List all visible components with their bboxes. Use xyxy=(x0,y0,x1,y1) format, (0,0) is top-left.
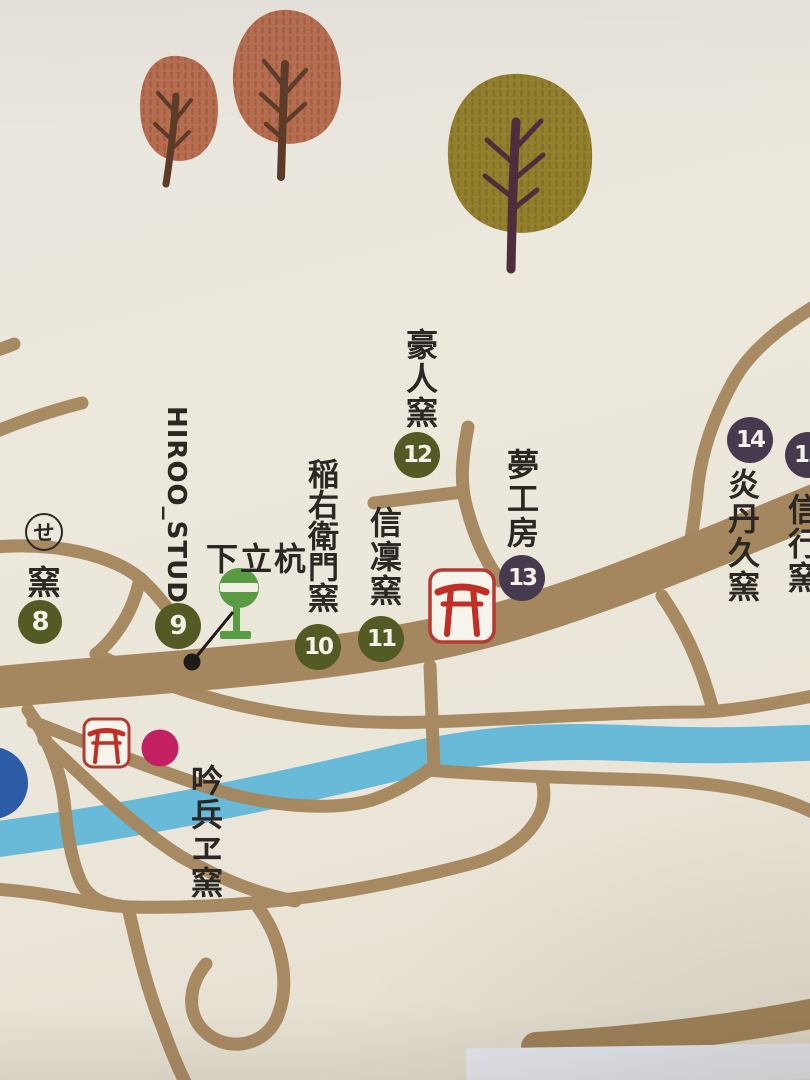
road-bottom-right-thick xyxy=(536,1008,810,1047)
road-center-branch xyxy=(374,492,463,503)
road-river-crossing xyxy=(430,666,434,770)
torii-icon xyxy=(84,719,129,767)
road-lens-branch xyxy=(96,578,140,654)
road-main-river-link xyxy=(662,596,712,706)
pale-cover-box xyxy=(466,1044,810,1080)
kiln-label-inaemon: 稲右衛門窯 xyxy=(304,458,335,613)
tree-small-terracotta xyxy=(140,56,218,184)
road-left-stub xyxy=(0,344,14,352)
marker-badge-13: 13 xyxy=(499,555,545,601)
kiln-location-dot xyxy=(142,730,179,767)
marker-badge-14: 14 xyxy=(727,417,773,463)
kiln-label-ginbee: 吟兵ヱ窯 xyxy=(189,764,221,900)
marker-badge-12: 12 xyxy=(394,432,440,478)
road-topleft-arc xyxy=(0,403,82,434)
marker-badge-10: 10 xyxy=(295,624,341,670)
kiln-label-gojin: 豪人窯 xyxy=(404,328,436,430)
kiln-label-se: せ 窯 xyxy=(24,513,64,604)
kiln-label-shinrin: 信凜窯 xyxy=(368,506,400,608)
tree-olive xyxy=(448,74,592,269)
kiln-label-entankyu: 炎丹久窯 xyxy=(726,468,758,604)
torii-icon xyxy=(430,570,494,642)
kiln-label-yumekobo: 夢工房 xyxy=(505,448,537,550)
kiln-label-shingyo: 信行窯 xyxy=(786,493,810,595)
bus-stop-label: 下立杭 xyxy=(206,534,308,580)
road-center-vertical xyxy=(462,427,500,581)
kiln-kanji: 窯 xyxy=(28,556,61,604)
marker-badge-11: 11 xyxy=(358,616,404,662)
circled-se-character: せ xyxy=(25,513,63,551)
partial-route-badge xyxy=(0,747,28,819)
road-bottom-loop xyxy=(192,907,284,1044)
pottery-village-map: せ 窯 8 HIROO_STUDIO 9 稲右衛門窯 10 信凜窯 11 豪人窯… xyxy=(0,0,810,1080)
marker-badge-8: 8 xyxy=(18,600,62,644)
tree-large-terracotta xyxy=(233,10,341,177)
map-canvas xyxy=(0,0,810,1080)
marker-badge-9: 9 xyxy=(155,603,201,649)
road-below-river xyxy=(428,770,810,820)
road-bottom-descender xyxy=(128,907,187,1080)
